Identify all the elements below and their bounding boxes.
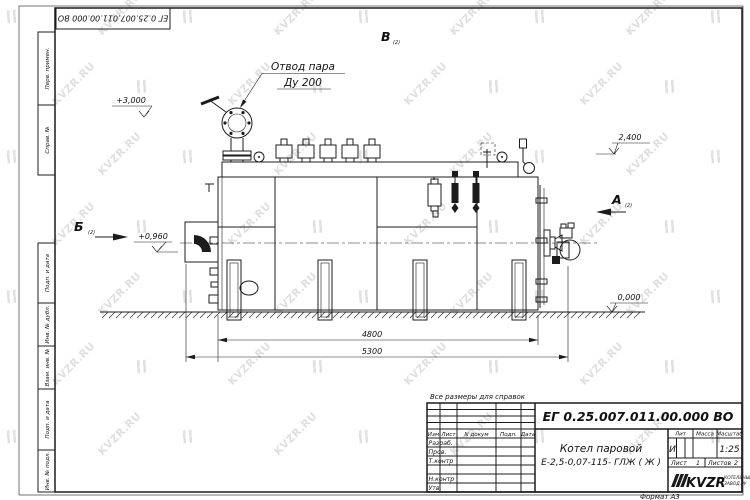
dashed-hatch-opening bbox=[481, 143, 495, 155]
reference-note: Все размеры для справок bbox=[430, 393, 526, 401]
elevation-text: 0,000 bbox=[618, 293, 641, 302]
logo-text: KVZR bbox=[686, 476, 726, 491]
view-b-left: Б (2) bbox=[74, 219, 128, 241]
elevation-text: 2,400 bbox=[619, 133, 642, 142]
ground-line bbox=[100, 312, 645, 318]
view-a-right: А (2) bbox=[596, 192, 632, 216]
view-letter: Б bbox=[74, 219, 84, 234]
safety-valves bbox=[276, 139, 380, 162]
steam-outlet-valve bbox=[201, 97, 252, 162]
drawing-sheet: KVZR.RUKVZR.RUKVZR.RUKVZR.RUKVZR.RUKVZR.… bbox=[0, 0, 750, 500]
logo-tagline1: КОТЕЛЬНЫЙ bbox=[724, 474, 750, 481]
dimension-overall-length: 5300 bbox=[362, 347, 382, 356]
view-sheet-ref: (2) bbox=[625, 203, 632, 209]
elevation-text: +3,000 bbox=[116, 96, 146, 105]
col-sign: Подп. bbox=[500, 432, 517, 438]
boiler-body bbox=[180, 162, 600, 310]
product-name-line1: Котел паровой bbox=[560, 443, 643, 455]
product-name-line2: Е-2,5-0,07-115- ГЛЖ ( Ж ) bbox=[541, 458, 661, 468]
mass-header: Масса bbox=[696, 432, 714, 438]
col-list: Лист bbox=[440, 432, 456, 438]
kvzr-logo: KVZR КОТЕЛЬНЫЙ ЗАВОД.РУ bbox=[671, 474, 750, 491]
title-block: Все размеры для справок Изм Лист N докум… bbox=[427, 393, 750, 492]
elevation-ground: 0,000 bbox=[607, 293, 648, 312]
corner-stamp-text: ЕГ 0.25.007.011.00.000 ВО bbox=[58, 14, 168, 23]
sheet-num: 1 bbox=[696, 460, 700, 467]
designation: ЕГ 0.25.007.011.00.000 ВО bbox=[543, 409, 734, 424]
view-sheet-ref: (2) bbox=[88, 230, 95, 236]
burner bbox=[185, 222, 218, 262]
elevation-burner-axis: +0,960 bbox=[134, 232, 178, 252]
role-utv: Утв. bbox=[429, 485, 442, 492]
elevation-text: +0,960 bbox=[138, 232, 168, 241]
role-razrab: Разраб. bbox=[429, 439, 453, 447]
margin-label: Инв. № дубл. bbox=[45, 305, 51, 343]
margin-label: Взам. инв. № bbox=[45, 348, 51, 386]
drum-top-fittings bbox=[254, 139, 535, 174]
format-label: Формат А3 bbox=[640, 493, 680, 500]
margin-label: Инв. № подл. bbox=[45, 451, 51, 490]
elevation-drum-top: 2,400 bbox=[596, 133, 650, 154]
boiler-general-view-drawing: Перв. примен. Справ. № Подп. и дата Инв.… bbox=[0, 0, 750, 500]
corner-stamp: ЕГ 0.25.007.011.00.000 ВО bbox=[56, 8, 170, 29]
scale-value: 1:25 bbox=[719, 445, 739, 455]
lit-header: Лит bbox=[674, 432, 687, 438]
role-tkontr: Т.контр bbox=[429, 458, 454, 465]
col-izm: Изм bbox=[428, 432, 440, 438]
view-letter: В bbox=[381, 29, 391, 44]
steam-outlet-callout: Отвод пара Ду 200 bbox=[240, 61, 345, 108]
col-date: Дата bbox=[520, 432, 536, 438]
role-nkontr: Н.контр bbox=[429, 476, 455, 483]
dimension-support-span: 4800 bbox=[362, 330, 382, 339]
water-level-gauges bbox=[428, 171, 480, 217]
lifting-eye bbox=[520, 139, 535, 174]
margin-label: Перв. примен. bbox=[45, 47, 51, 89]
callout-line2: Ду 200 bbox=[283, 77, 322, 89]
view-arrows: Б (2) А (2) В (2) bbox=[74, 29, 632, 241]
margin-stamps: Перв. примен. Справ. № Подп. и дата Инв.… bbox=[38, 32, 55, 492]
margin-label: Справ. № bbox=[45, 126, 51, 153]
margin-label: Подп. и дата bbox=[45, 400, 51, 439]
margin-label: Подп. и дата bbox=[45, 253, 51, 292]
elevation-steam-top: +3,000 bbox=[112, 96, 152, 117]
col-doc: N докум bbox=[464, 432, 489, 438]
feed-pump bbox=[544, 223, 580, 264]
manhole bbox=[240, 281, 258, 295]
scale-header: Масштаб bbox=[716, 432, 743, 438]
role-prov: Пров. bbox=[429, 449, 447, 456]
logo-tagline2: ЗАВОД.РУ bbox=[724, 481, 747, 487]
sheet-word: Лист bbox=[670, 460, 687, 467]
sheets-word: Листов bbox=[707, 460, 731, 467]
view-sheet-ref: (2) bbox=[393, 40, 400, 46]
sheets-num: 2 bbox=[734, 460, 738, 467]
elevation-marks: +3,000 +0,960 2,400 0,000 bbox=[112, 96, 650, 312]
lit-value: И bbox=[669, 445, 676, 455]
callout-line1: Отвод пара bbox=[271, 61, 335, 73]
view-v-top: В (2) bbox=[381, 29, 400, 46]
view-letter: А bbox=[611, 192, 622, 207]
